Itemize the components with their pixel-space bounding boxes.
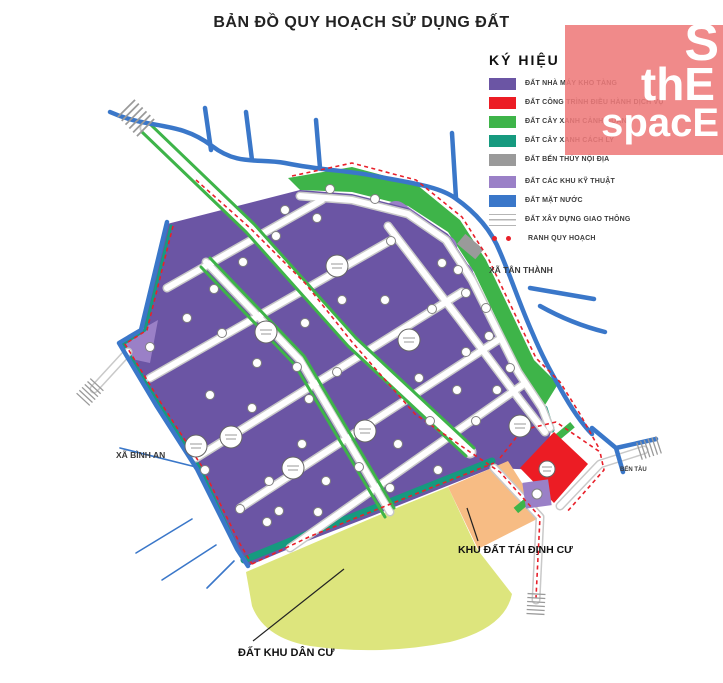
legend-swatch-water xyxy=(489,195,516,207)
label-ben-tau: BẾN TÀU xyxy=(620,467,647,473)
legend-label: ĐẤT CÁC KHU KỸ THUẬT xyxy=(525,178,615,185)
legend-swatch-landscape-green xyxy=(489,116,516,128)
legend-swatch-factory xyxy=(489,78,516,90)
legend-swatch-isolation-green xyxy=(489,135,516,147)
legend-item-boundary: RANH QUY HOẠCH xyxy=(489,232,721,245)
label-dat-khu-dan-cu: ĐẤT KHU DÂN CƯ xyxy=(238,647,335,659)
legend-swatch-technical xyxy=(489,176,516,188)
legend-item-water: ĐẤT MẶT NƯỚC xyxy=(489,194,721,207)
legend-item-traffic: ĐẤT XÂY DỰNG GIAO THÔNG xyxy=(489,213,721,226)
planning-map-page: BẢN ĐỒ QUY HOẠCH SỬ DỤNG ĐẤT xyxy=(0,0,723,683)
legend-label: ĐẤT MẶT NƯỚC xyxy=(525,197,583,204)
legend-swatch-traffic xyxy=(489,214,516,226)
legend-label: ĐẤT BẾN THỦY NỘI ĐỊA xyxy=(525,156,609,163)
label-xa-tan-thanh: XÃ TÂN THÀNH xyxy=(489,265,553,275)
legend-swatch-inland-dock xyxy=(489,154,516,166)
legend-label: ĐẤT XÂY DỰNG GIAO THÔNG xyxy=(525,216,631,223)
legend-swatch-service xyxy=(489,97,516,109)
legend-item-technical: ĐẤT CÁC KHU KỸ THUẬT xyxy=(489,175,721,188)
watermark-the-space: S thE spacE xyxy=(565,25,723,155)
legend-swatch-boundary xyxy=(489,233,519,245)
label-xa-binh-an: XÃ BÌNH AN xyxy=(116,450,165,460)
legend-label: RANH QUY HOẠCH xyxy=(528,235,596,242)
label-khu-dat-tai-dinh-cu: KHU ĐẤT TÁI ĐỊNH CƯ xyxy=(458,544,573,556)
watermark-word-3: spacE xyxy=(601,103,719,143)
